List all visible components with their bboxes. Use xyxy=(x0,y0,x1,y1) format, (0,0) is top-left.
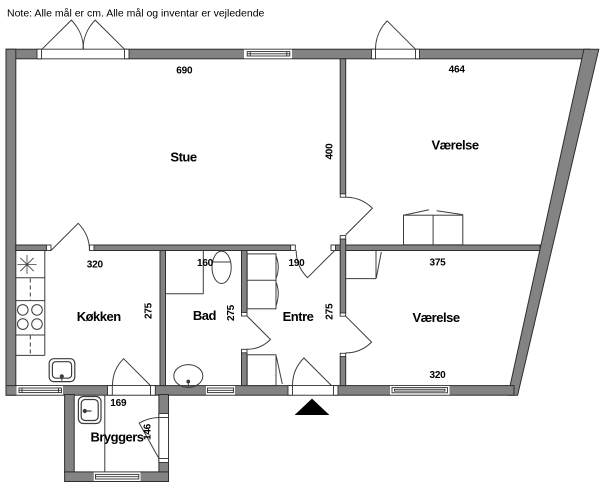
svg-text:275: 275 xyxy=(325,303,336,320)
svg-text:146: 146 xyxy=(143,423,154,440)
svg-text:400: 400 xyxy=(325,143,336,160)
svg-text:Værelse: Værelse xyxy=(431,138,478,153)
svg-text:Note: Alle mål er cm. Alle mål: Note: Alle mål er cm. Alle mål og invent… xyxy=(7,8,265,20)
svg-text:275: 275 xyxy=(144,302,155,319)
svg-text:320: 320 xyxy=(87,259,104,270)
svg-text:190: 190 xyxy=(288,258,305,269)
svg-text:690: 690 xyxy=(176,66,193,77)
svg-text:375: 375 xyxy=(429,257,446,268)
svg-text:160: 160 xyxy=(197,258,214,269)
svg-text:Værelse: Værelse xyxy=(412,310,459,325)
svg-text:464: 464 xyxy=(449,65,466,76)
svg-text:Bryggers: Bryggers xyxy=(90,430,143,445)
svg-text:Bad: Bad xyxy=(193,308,217,323)
svg-text:275: 275 xyxy=(226,304,237,321)
svg-text:Køkken: Køkken xyxy=(77,309,122,324)
svg-text:Stue: Stue xyxy=(170,150,196,165)
svg-text:169: 169 xyxy=(110,398,127,409)
svg-text:320: 320 xyxy=(429,370,446,381)
svg-text:Entre: Entre xyxy=(283,309,314,324)
